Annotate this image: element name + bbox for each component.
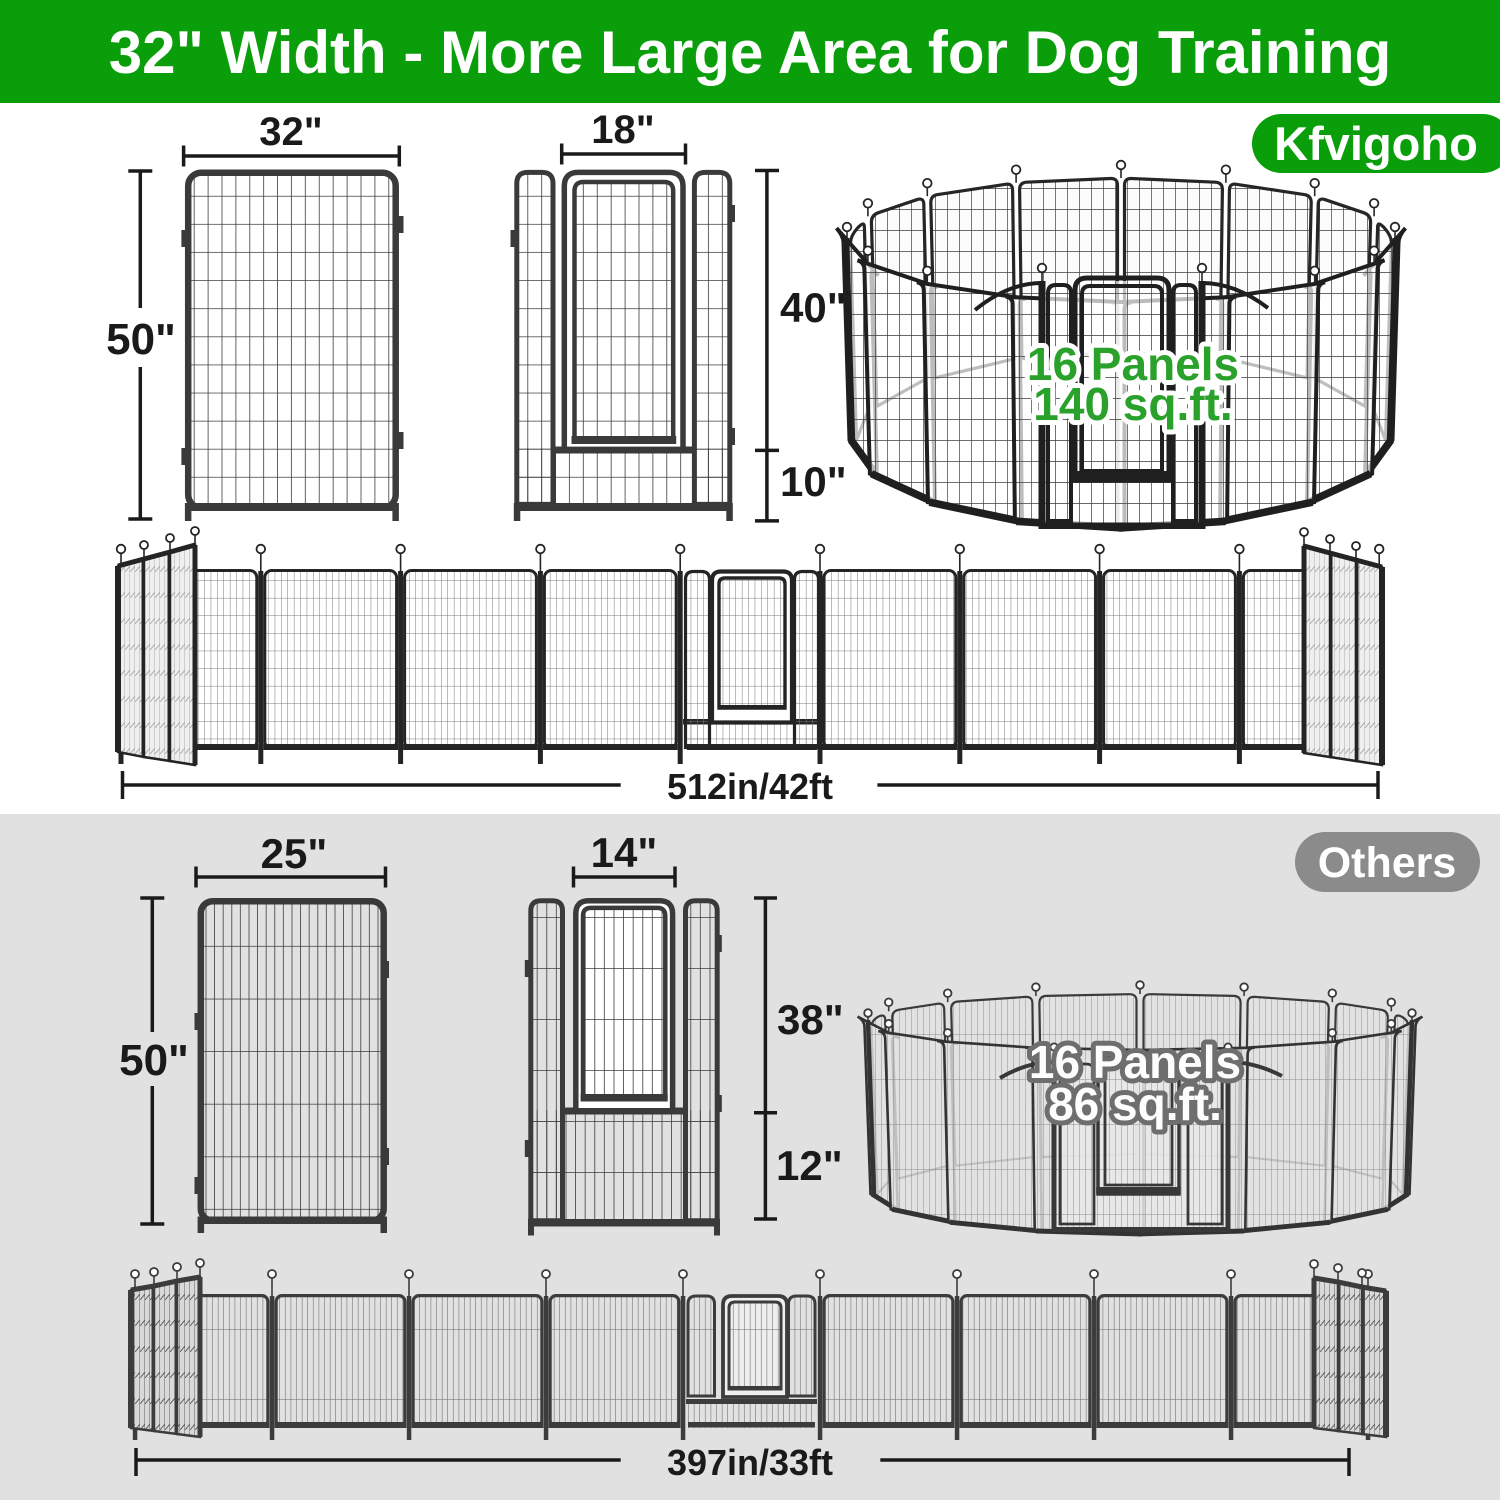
- svg-text:12": 12": [776, 1142, 843, 1189]
- svg-text:14": 14": [591, 829, 658, 876]
- svg-text:50": 50": [106, 315, 176, 364]
- svg-text:Others: Others: [1318, 839, 1457, 887]
- svg-text:40": 40": [780, 284, 847, 331]
- svg-text:25": 25": [261, 830, 328, 877]
- svg-text:18": 18": [591, 108, 654, 152]
- svg-text:512in/42ft: 512in/42ft: [667, 766, 833, 807]
- svg-text:397in/33ft: 397in/33ft: [667, 1442, 833, 1483]
- svg-text:50": 50": [119, 1036, 189, 1085]
- svg-text:32": 32": [259, 110, 322, 154]
- svg-text:Kfvigoho: Kfvigoho: [1274, 117, 1478, 170]
- svg-text:10": 10": [780, 458, 847, 505]
- svg-text:32" Width - More Large Area fo: 32" Width - More Large Area for Dog Trai…: [109, 19, 1391, 86]
- svg-text:86 sq.ft.: 86 sq.ft.: [1048, 1078, 1222, 1130]
- svg-text:38": 38": [777, 996, 844, 1043]
- svg-text:140 sq.ft.: 140 sq.ft.: [1033, 378, 1232, 430]
